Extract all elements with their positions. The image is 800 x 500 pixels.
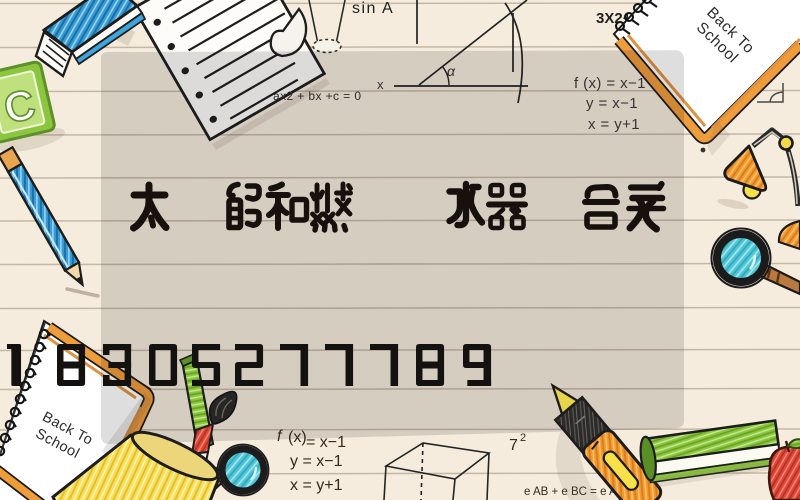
- svg-text:= x−1: = x−1: [306, 434, 346, 451]
- svg-text:2: 2: [520, 432, 526, 444]
- svg-text:(x): (x): [288, 429, 307, 446]
- svg-text:sin A: sin A: [352, 0, 394, 17]
- svg-text:y = x−1: y = x−1: [290, 453, 343, 470]
- svg-text:7: 7: [509, 437, 518, 454]
- svg-text:x = y+1: x = y+1: [290, 477, 343, 494]
